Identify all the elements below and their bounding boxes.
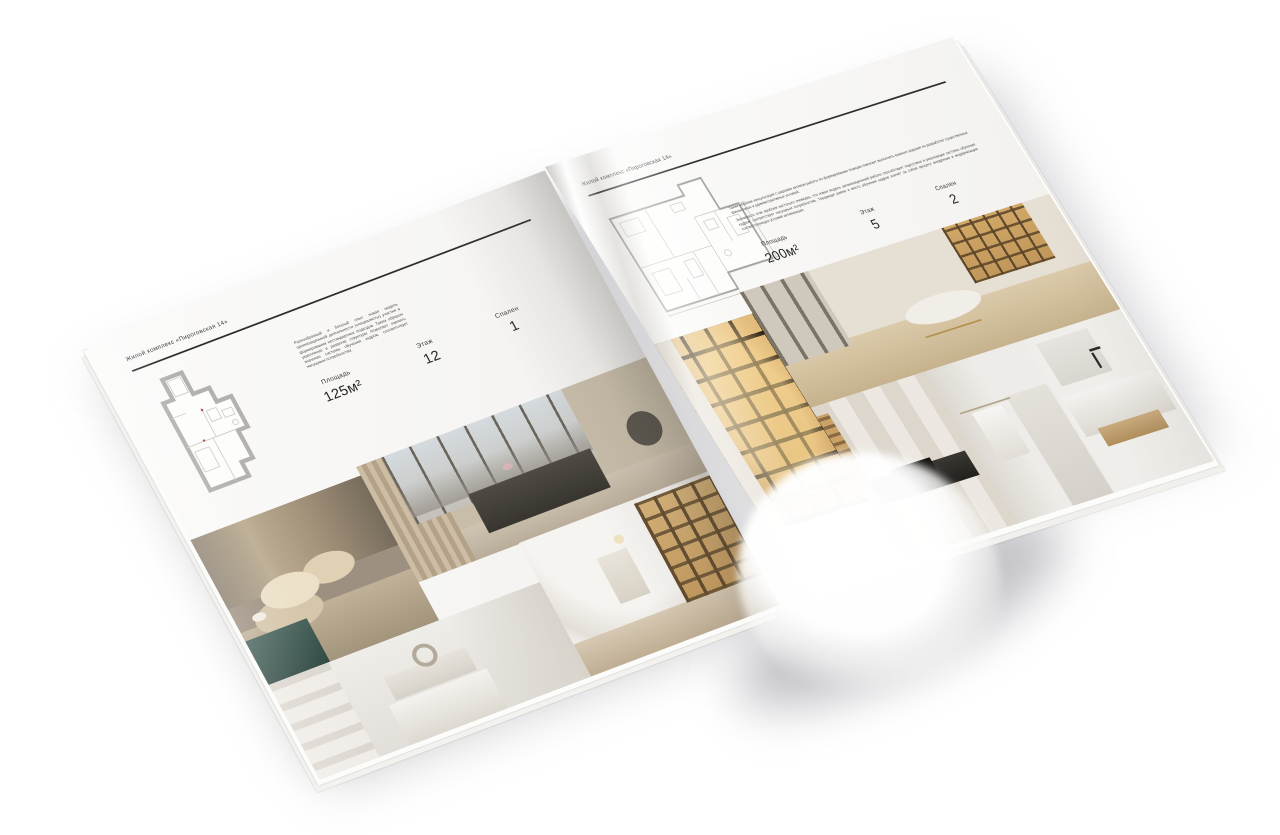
floor-plan-125 (140, 349, 285, 508)
stat-floor: Этаж 5 (831, 196, 915, 242)
floor-plan-drawing (140, 349, 285, 508)
stat-bedrooms: Спален 1 (466, 294, 557, 349)
mockup-scene: Жилой комплекс «Пироговская 14» (0, 0, 1280, 835)
stat-bedrooms: Спален 2 (909, 171, 993, 217)
